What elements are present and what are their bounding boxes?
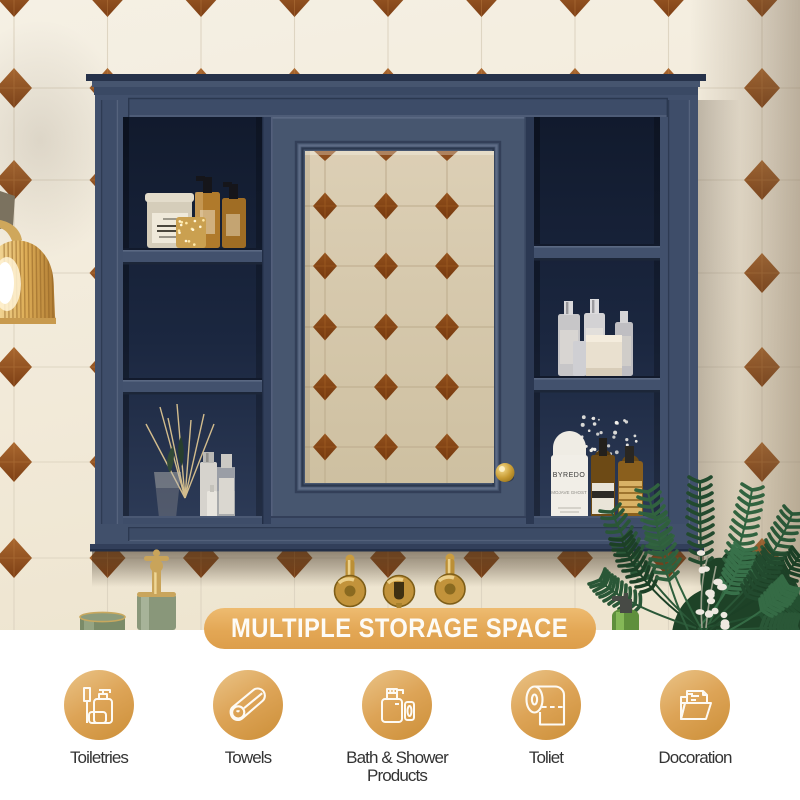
- svg-text:MOJAVE GHOST: MOJAVE GHOST: [551, 490, 587, 495]
- svg-text:BYREDO: BYREDO: [553, 472, 586, 479]
